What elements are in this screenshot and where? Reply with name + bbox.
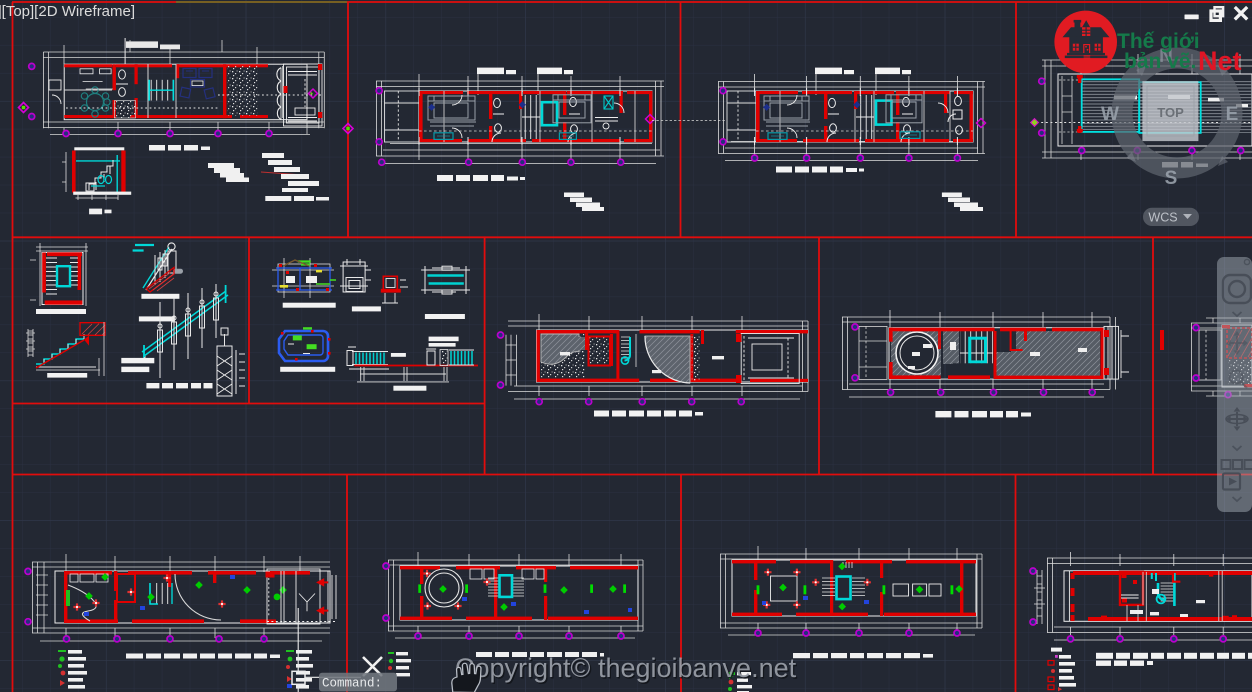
svg-text:Copyright© thegioibanve.net: Copyright© thegioibanve.net — [455, 653, 797, 683]
svg-text:W: W — [1101, 104, 1119, 125]
svg-text:bản vẽ.: bản vẽ. — [1124, 50, 1196, 73]
svg-text:Net: Net — [1198, 46, 1242, 76]
svg-text:E: E — [1226, 104, 1239, 125]
svg-text:TOP: TOP — [1157, 105, 1184, 120]
svg-text:WCS: WCS — [1148, 211, 1177, 225]
svg-text:S: S — [1165, 168, 1178, 189]
svg-text:][Top][2D Wireframe]: ][Top][2D Wireframe] — [0, 3, 135, 20]
svg-text:Command:: Command: — [322, 677, 382, 691]
